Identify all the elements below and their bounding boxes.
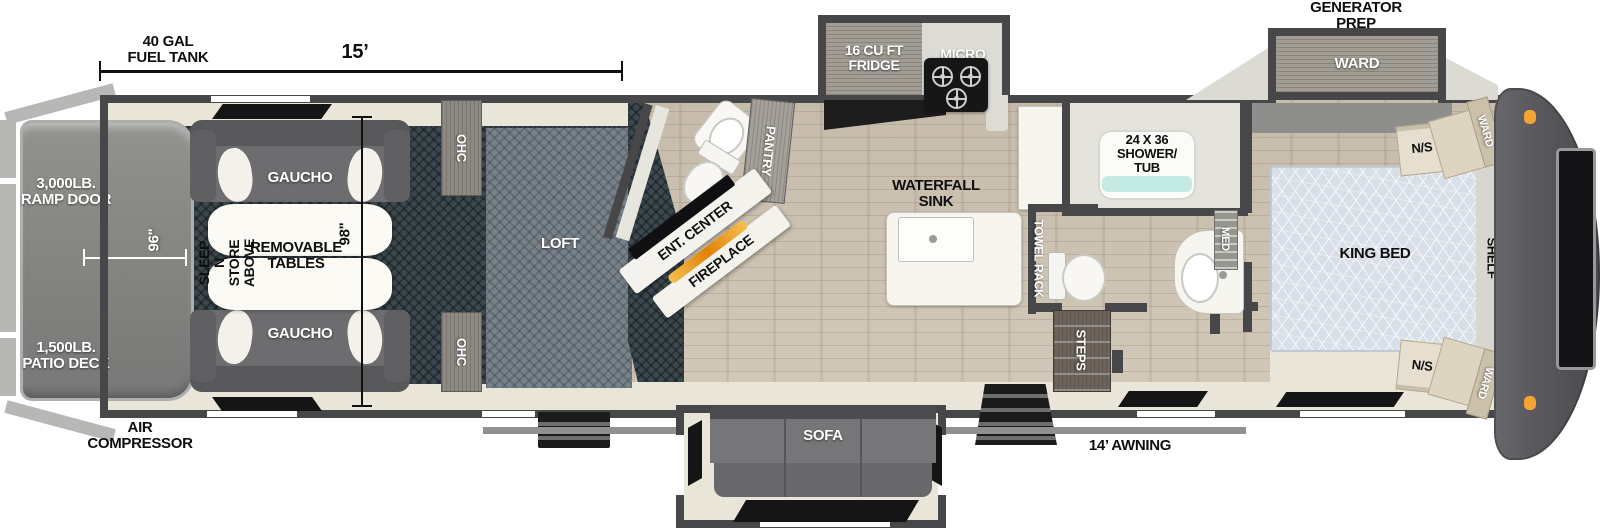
ohc-top-label: OHC (454, 134, 468, 162)
awning-label: 14’ AWNING (1078, 438, 1182, 454)
ramp-door-label: 3,000LB. RAMP DOOR (4, 176, 128, 208)
loft-label: LOFT (505, 236, 615, 252)
marker-light-top-icon (1524, 110, 1536, 124)
kitchen-tall-cabinet (1018, 106, 1064, 210)
deck-rail-gap-2 (0, 332, 16, 338)
sofa-label: SOFA (773, 428, 873, 444)
patio-deck-label: 1,500LB. PATIO DECK (4, 340, 128, 372)
faucet-icon (929, 235, 937, 243)
sofa-seat (714, 463, 932, 497)
steps-label: STEPS (1074, 329, 1088, 370)
sofa-slide-window-bottom (760, 522, 890, 527)
marker-light-bottom-icon (1524, 396, 1536, 410)
garage-mat-top (212, 104, 332, 119)
fridge-label: 16 CU FT FRIDGE (830, 43, 918, 73)
window-garage-bottom (207, 411, 297, 417)
ohc-bottom-label-box: OHC (441, 322, 480, 382)
gaucho-top-back (190, 120, 410, 146)
hall-mat (1118, 391, 1208, 407)
bedroom-slideout: WARD (1268, 28, 1446, 100)
dim-tick-right (621, 61, 623, 81)
main-entry-steps (975, 384, 1057, 445)
sofa-slide-mat (733, 500, 919, 522)
fuel-tank-label: 40 GAL FUEL TANK (98, 34, 238, 66)
ohc-top-label-box: OHC (441, 118, 480, 178)
steps-wall-stub (1112, 350, 1123, 373)
shower-tub-label: 24 X 36 SHOWER/ TUB (1096, 133, 1198, 175)
wall-rear (100, 95, 108, 418)
window-loft-bottom (482, 411, 535, 417)
garage-width-tick-top (352, 116, 372, 118)
front-cap-window (1556, 148, 1596, 370)
garage-mat-bottom (212, 397, 322, 411)
steps-label-box: STEPS (1053, 312, 1109, 388)
ohc-bottom-label: OHC (454, 338, 468, 366)
cap-taper-right (1446, 58, 1498, 100)
bedroom-wall-upper (1243, 95, 1252, 213)
kitchen-island (886, 212, 1022, 306)
ward-slide-label: WARD (1307, 56, 1407, 72)
dim-tick-left (99, 61, 101, 81)
gaucho-top-arm-right (384, 130, 410, 202)
bath-faucet-icon (1219, 271, 1227, 279)
gaucho-top-arm-left (190, 130, 216, 202)
window-bedroom-bottom (1300, 411, 1405, 417)
sofa: SOFA (710, 405, 936, 497)
garage-width-dim-line (361, 118, 363, 407)
entry-door-gap (1137, 411, 1215, 417)
gaucho-bottom-back (190, 366, 410, 392)
med-label: MED (1219, 227, 1231, 251)
sleep-n-store-box: SLEEP N STORE ABOVE (204, 198, 250, 328)
gaucho-bottom-arm-right (384, 310, 410, 382)
sofa-slide-window-left (688, 420, 702, 486)
burner-icon-1 (932, 66, 953, 87)
garage-length-label: 15’ (320, 42, 390, 62)
garage-length-dim-line (100, 70, 623, 73)
deck-width-label: 96" (146, 229, 162, 252)
floorplan-canvas: 40 GAL FUEL TANK 15’ GENERATOR PREP 3,00… (0, 0, 1600, 531)
awning-bar-right (946, 427, 1246, 434)
bedroom-mat (1276, 392, 1404, 407)
king-bed-label: KING BED (1320, 246, 1430, 262)
towel-rack-label: TOWEL RACK (1032, 219, 1045, 297)
counter-return (986, 95, 1008, 131)
deck-width-tick-left (83, 249, 85, 266)
burner-icon-2 (960, 66, 981, 87)
bath-wall-south-2 (1105, 303, 1147, 312)
awning-bar-left (483, 427, 676, 434)
sofa-slide-window-gap-left (676, 435, 684, 495)
garage-width-label-box: 98" (329, 212, 361, 256)
bedroom-wall-lower (1243, 262, 1252, 332)
sofa-back-rail (710, 405, 936, 419)
garage-width-label: 98" (337, 223, 353, 246)
sleep-n-store-label: SLEEP N STORE ABOVE (197, 239, 257, 287)
burner-icon-3 (946, 88, 967, 109)
shower-water (1102, 176, 1192, 192)
gaucho-bottom-label: GAUCHO (250, 326, 350, 342)
waterfall-sink-label: WATERFALL SINK (878, 178, 994, 210)
bath-toilet-bowl (1062, 254, 1106, 302)
deck-width-label-box: 96" (138, 220, 170, 260)
gaucho-top: GAUCHO (190, 120, 410, 204)
garage-width-tick-bottom (352, 405, 372, 407)
gaucho-top-label: GAUCHO (250, 170, 350, 186)
med-label-box: MED (1212, 210, 1238, 268)
deck-width-tick-right (185, 249, 187, 266)
cooktop (924, 58, 988, 112)
window-garage-top (211, 96, 310, 102)
ward-top-label: WARD (1475, 114, 1495, 148)
air-compressor-label: AIR COMPRESSOR (75, 420, 205, 452)
cap-taper-left (1186, 48, 1268, 100)
